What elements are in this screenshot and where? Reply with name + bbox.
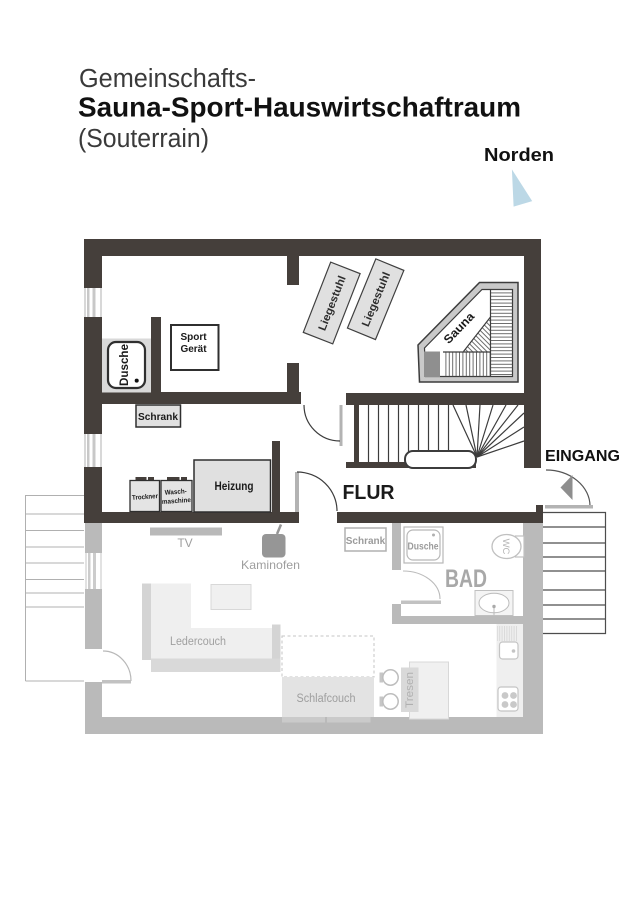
svg-text:Ledercouch: Ledercouch bbox=[170, 636, 226, 648]
svg-text:Sport: Sport bbox=[180, 332, 207, 343]
svg-text:Schlafcouch: Schlafcouch bbox=[297, 693, 356, 705]
svg-text:Dusche: Dusche bbox=[408, 542, 439, 553]
svg-text:TV: TV bbox=[177, 536, 192, 550]
svg-text:Schrank: Schrank bbox=[346, 536, 386, 547]
svg-text:EINGANG: EINGANG bbox=[545, 448, 620, 465]
svg-text:WC: WC bbox=[500, 539, 511, 555]
svg-text:BAD: BAD bbox=[445, 565, 487, 593]
svg-text:Sauna-Sport-Hauswirtschaftraum: Sauna-Sport-Hauswirtschaftraum bbox=[78, 92, 521, 123]
svg-text:Norden: Norden bbox=[484, 145, 554, 165]
svg-text:FLUR: FLUR bbox=[343, 482, 396, 504]
svg-text:Dusche: Dusche bbox=[117, 344, 131, 386]
svg-text:Gerät: Gerät bbox=[180, 344, 207, 355]
svg-text:Gemeinschafts-: Gemeinschafts- bbox=[79, 65, 256, 93]
svg-text:Kaminofen: Kaminofen bbox=[241, 558, 300, 572]
svg-text:Tresen: Tresen bbox=[404, 672, 416, 708]
svg-text:Heizung: Heizung bbox=[215, 479, 254, 493]
svg-text:Schrank: Schrank bbox=[138, 412, 178, 423]
svg-text:(Souterrain): (Souterrain) bbox=[78, 125, 209, 153]
